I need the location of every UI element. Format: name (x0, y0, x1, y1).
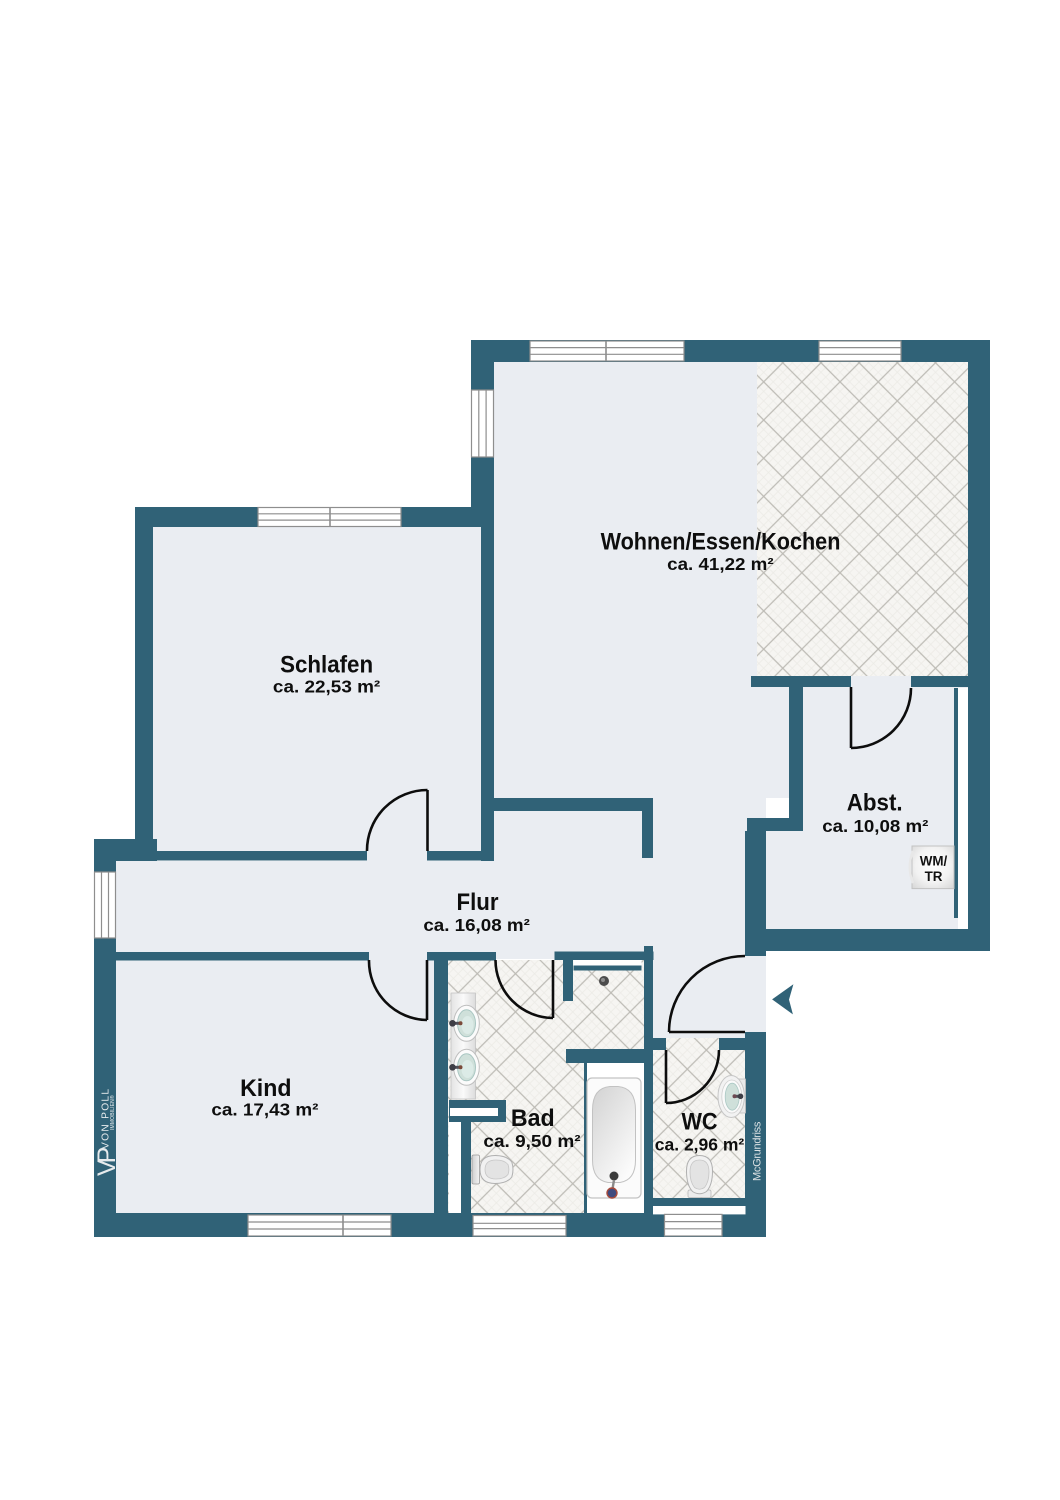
svg-text:WC: WC (681, 1108, 717, 1135)
svg-text:Flur: Flur (457, 889, 499, 916)
svg-text:Bad: Bad (511, 1105, 555, 1132)
svg-text:Schlafen: Schlafen (280, 651, 373, 678)
svg-text:ca. 41,22 m²: ca. 41,22 m² (667, 554, 774, 574)
svg-text:VP: VP (93, 1147, 121, 1176)
svg-text:ca. 17,43 m²: ca. 17,43 m² (211, 1100, 318, 1120)
svg-text:ca. 16,08 m²: ca. 16,08 m² (423, 915, 530, 935)
svg-text:WM/: WM/ (920, 854, 948, 869)
svg-text:ca. 9,50 m²: ca. 9,50 m² (483, 1131, 580, 1151)
svg-text:IMMOBILIEN®: IMMOBILIEN® (109, 1095, 116, 1130)
svg-text:Abst.: Abst. (847, 790, 903, 817)
svg-text:ca. 2,96 m²: ca. 2,96 m² (655, 1134, 745, 1154)
svg-text:Wohnen/Essen/Kochen: Wohnen/Essen/Kochen (601, 528, 841, 555)
svg-text:McGrundriss: McGrundriss (752, 1121, 764, 1181)
svg-text:Kind: Kind (240, 1075, 291, 1102)
svg-text:ca. 22,53 m²: ca. 22,53 m² (273, 676, 381, 696)
svg-text:TR: TR (925, 869, 943, 884)
svg-text:ca. 10,08 m²: ca. 10,08 m² (822, 816, 928, 836)
